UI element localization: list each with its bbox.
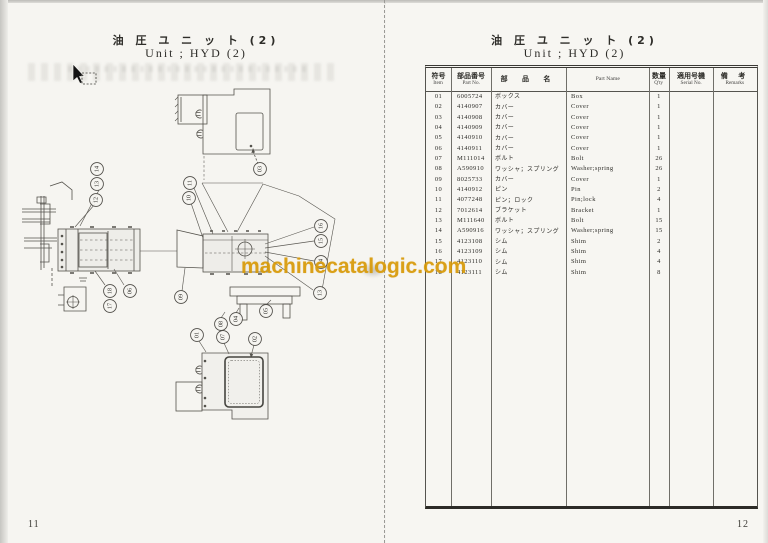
right-page-title-en: Unit ; HYD (2) bbox=[386, 46, 763, 61]
table-row: 13M111640ボルトBolt15 bbox=[426, 216, 757, 226]
table-row: 016005724ボックスBox1 bbox=[426, 92, 757, 102]
callout-03: 03 bbox=[254, 163, 267, 176]
cell-qty: 2 bbox=[649, 187, 669, 194]
right-page-number: 12 bbox=[737, 519, 749, 530]
svg-text:10: 10 bbox=[186, 195, 193, 201]
cell-item: 14 bbox=[426, 228, 451, 235]
svg-text:12: 12 bbox=[93, 197, 100, 203]
table-row: 044140909カバーCover1 bbox=[426, 123, 757, 133]
cell-qty: 15 bbox=[649, 228, 669, 235]
col-header-part-name: Part Name bbox=[566, 68, 649, 91]
callout-leader-line bbox=[265, 241, 314, 248]
cell-name_jp: カバー bbox=[491, 105, 566, 111]
left-page-number: 11 bbox=[28, 519, 40, 530]
cell-name_jp: ブラケット bbox=[491, 208, 566, 214]
table-row: 184123111シムShim8 bbox=[426, 268, 757, 278]
svg-text:15: 15 bbox=[318, 238, 325, 244]
callout-02: 02 bbox=[249, 333, 262, 346]
cell-name_en: Bolt bbox=[566, 156, 649, 163]
callout-17: 17 bbox=[104, 300, 117, 313]
table-row: 174123110シムShim4 bbox=[426, 258, 757, 268]
cell-part_no: 4123108 bbox=[451, 239, 491, 246]
cell-name_jp: カバー bbox=[491, 146, 566, 152]
callout-leader-line bbox=[95, 271, 105, 285]
cell-name_jp: ワッシャ；スプリング bbox=[491, 229, 566, 235]
cell-item: 07 bbox=[426, 156, 451, 163]
svg-text:09: 09 bbox=[178, 294, 185, 300]
callout-leader-line bbox=[224, 343, 229, 354]
table-column-line bbox=[566, 68, 567, 506]
cell-part_no: 4140908 bbox=[451, 115, 491, 122]
callout-18: 18 bbox=[104, 285, 117, 298]
callout-leader-line bbox=[182, 268, 185, 291]
cell-part_no: 6005724 bbox=[451, 94, 491, 101]
svg-text:11: 11 bbox=[187, 180, 194, 186]
callout-10: 10 bbox=[183, 192, 196, 205]
table-row: 034140908カバーCover1 bbox=[426, 113, 757, 123]
table-row: 064140911カバーCover1 bbox=[426, 144, 757, 154]
cell-item: 13 bbox=[426, 218, 451, 225]
table-row: 08A590910ワッシャ；スプリングWasher;spring26 bbox=[426, 164, 757, 174]
table-row: 054140910カバーCover1 bbox=[426, 133, 757, 143]
cell-name_jp: カバー bbox=[491, 177, 566, 183]
cell-qty: 15 bbox=[649, 218, 669, 225]
callout-08: 08 bbox=[215, 318, 228, 331]
callout-leader-line bbox=[265, 227, 314, 244]
callout-leader-line bbox=[194, 188, 213, 234]
cell-name_jp: ピン；ロック bbox=[491, 198, 566, 204]
table-column-line bbox=[669, 68, 670, 506]
cell-name_jp: シム bbox=[491, 270, 566, 276]
cell-name_en: Cover bbox=[566, 135, 649, 142]
cell-name_en: Washer;spring bbox=[566, 166, 649, 173]
col-header-remarks: 備 考 Remarks bbox=[713, 68, 757, 91]
cell-item: 10 bbox=[426, 187, 451, 194]
cell-qty: 26 bbox=[649, 156, 669, 163]
cell-qty: 1 bbox=[649, 94, 669, 101]
svg-text:17: 17 bbox=[107, 303, 114, 309]
svg-text:18: 18 bbox=[107, 288, 114, 294]
cell-item: 12 bbox=[426, 208, 451, 215]
cell-name_en: Cover bbox=[566, 125, 649, 132]
cell-name_en: Cover bbox=[566, 104, 649, 111]
scan-edge-right bbox=[763, 0, 768, 543]
table-row: 104140912ピンPin2 bbox=[426, 185, 757, 195]
cell-part_no: 4140909 bbox=[451, 125, 491, 132]
table-column-line bbox=[713, 68, 714, 506]
cell-name_jp: シム bbox=[491, 249, 566, 255]
cell-qty: 1 bbox=[649, 208, 669, 215]
cell-name_jp: シム bbox=[491, 239, 566, 245]
cell-name_jp: ピン bbox=[491, 187, 566, 193]
cell-part_no: 4140912 bbox=[451, 187, 491, 194]
cell-name_jp: ボックス bbox=[491, 94, 566, 100]
table-header-row: 符号 Item 部品番号 Part No. 部 品 名 Part Name 数量… bbox=[426, 68, 757, 91]
cell-name_en: Pin bbox=[566, 187, 649, 194]
svg-text:04: 04 bbox=[233, 316, 240, 322]
cell-item: 03 bbox=[426, 115, 451, 122]
watermark-text: machinecatalogic.com bbox=[241, 255, 466, 279]
callout-16: 16 bbox=[315, 220, 328, 233]
cell-part_no: 4140910 bbox=[451, 135, 491, 142]
cell-qty: 26 bbox=[649, 166, 669, 173]
table-column-line bbox=[491, 68, 492, 506]
svg-text:01: 01 bbox=[194, 332, 201, 338]
callout-13: 13 bbox=[91, 178, 104, 191]
selection-dashed-box bbox=[82, 73, 96, 84]
cell-item: 04 bbox=[426, 125, 451, 132]
col-header-serial: 適用号機 Serial No. bbox=[669, 68, 713, 91]
callout-05: 05 bbox=[260, 305, 273, 318]
cell-qty: 1 bbox=[649, 146, 669, 153]
table-row: 164123109シムShim4 bbox=[426, 247, 757, 257]
callout-13: 13 bbox=[314, 287, 327, 300]
cell-part_no: 4140911 bbox=[451, 146, 491, 153]
cell-part_no: 7012614 bbox=[451, 208, 491, 215]
scan-edge-left bbox=[0, 0, 8, 543]
cell-name_en: Cover bbox=[566, 115, 649, 122]
cell-name_en: Shim bbox=[566, 239, 649, 246]
callout-leader-line bbox=[191, 203, 203, 238]
callout-04: 04 bbox=[230, 313, 243, 326]
table-row: 07M111014ボルトBolt26 bbox=[426, 154, 757, 164]
parts-table: 符号 Item 部品番号 Part No. 部 品 名 Part Name 数量… bbox=[425, 65, 758, 509]
cell-qty: 4 bbox=[649, 259, 669, 266]
cell-name_en: Cover bbox=[566, 146, 649, 153]
table-column-line bbox=[649, 68, 650, 506]
svg-text:13: 13 bbox=[317, 290, 324, 296]
callout-09: 09 bbox=[175, 291, 188, 304]
cell-name_en: Bolt bbox=[566, 218, 649, 225]
svg-text:14: 14 bbox=[94, 166, 101, 172]
cell-name_en: Pin;lock bbox=[566, 197, 649, 204]
cell-part_no: A590916 bbox=[451, 228, 491, 235]
callout-14: 14 bbox=[91, 163, 104, 176]
callout-06: 06 bbox=[124, 285, 137, 298]
svg-text:06: 06 bbox=[127, 288, 134, 294]
table-row: 154123108シムShim2 bbox=[426, 237, 757, 247]
cell-name_en: Shim bbox=[566, 270, 649, 277]
cell-item: 08 bbox=[426, 166, 451, 173]
cell-name_en: Bracket bbox=[566, 208, 649, 215]
cell-name_jp: ボルト bbox=[491, 156, 566, 162]
svg-text:02: 02 bbox=[252, 336, 259, 342]
table-row: 098025733カバーCover1 bbox=[426, 175, 757, 185]
cell-name_jp: シム bbox=[491, 260, 566, 266]
svg-text:13: 13 bbox=[94, 181, 101, 187]
cell-item: 02 bbox=[426, 104, 451, 111]
col-header-item: 符号 Item bbox=[426, 68, 451, 91]
cell-qty: 2 bbox=[649, 239, 669, 246]
cell-name_jp: ワッシャ；スプリング bbox=[491, 167, 566, 173]
callout-leader-line bbox=[199, 341, 206, 352]
callout-12: 12 bbox=[90, 194, 103, 207]
cell-qty: 1 bbox=[649, 104, 669, 111]
cell-item: 05 bbox=[426, 135, 451, 142]
table-column-line bbox=[451, 68, 452, 506]
svg-text:05: 05 bbox=[263, 308, 270, 314]
cell-part_no: 4077248 bbox=[451, 197, 491, 204]
callout-leader-line bbox=[75, 204, 95, 227]
col-header-qty: 数量 Q'ty bbox=[649, 68, 669, 91]
cell-name_en: Cover bbox=[566, 177, 649, 184]
table-row: 127012614ブラケットBracket1 bbox=[426, 206, 757, 216]
cell-qty: 4 bbox=[649, 197, 669, 204]
cell-name_jp: カバー bbox=[491, 115, 566, 121]
callout-11: 11 bbox=[184, 177, 197, 190]
cell-name_en: Shim bbox=[566, 249, 649, 256]
cell-name_en: Shim bbox=[566, 259, 649, 266]
cell-qty: 1 bbox=[649, 135, 669, 142]
cell-item: 06 bbox=[426, 146, 451, 153]
table-row: 024140907カバーCover1 bbox=[426, 102, 757, 112]
col-header-part-no: 部品番号 Part No. bbox=[451, 68, 491, 91]
cell-part_no: 8025733 bbox=[451, 177, 491, 184]
cell-qty: 8 bbox=[649, 270, 669, 277]
cell-part_no: 4140907 bbox=[451, 104, 491, 111]
cell-part_no: M111014 bbox=[451, 156, 491, 163]
cell-item: 15 bbox=[426, 239, 451, 246]
cell-name_en: Box bbox=[566, 94, 649, 101]
scanned-catalog-spread: 油 圧 ユ ニ ッ ト (2) Unit ; HYD (2) bbox=[0, 0, 768, 543]
cell-item: 09 bbox=[426, 177, 451, 184]
cell-qty: 1 bbox=[649, 125, 669, 132]
table-body: 016005724ボックスBox1024140907カバーCover103414… bbox=[426, 92, 757, 278]
table-row: 14A590916ワッシャ；スプリングWasher;spring15 bbox=[426, 226, 757, 236]
cell-name_jp: ボルト bbox=[491, 218, 566, 224]
callout-leader-line bbox=[221, 312, 225, 318]
svg-text:03: 03 bbox=[257, 166, 264, 172]
table-row: 114077248ピン；ロックPin;lock4 bbox=[426, 195, 757, 205]
svg-text:07: 07 bbox=[220, 334, 227, 340]
cell-name_jp: カバー bbox=[491, 125, 566, 131]
callout-15: 15 bbox=[315, 235, 328, 248]
cell-qty: 4 bbox=[649, 249, 669, 256]
cell-qty: 1 bbox=[649, 115, 669, 122]
mouse-cursor-icon bbox=[73, 64, 84, 84]
svg-text:08: 08 bbox=[218, 321, 225, 327]
cell-qty: 1 bbox=[649, 177, 669, 184]
callout-07: 07 bbox=[217, 331, 230, 344]
cell-name_en: Washer;spring bbox=[566, 228, 649, 235]
col-header-name-jp: 部 品 名 bbox=[491, 68, 566, 91]
cell-part_no: A590910 bbox=[451, 166, 491, 173]
callout-01: 01 bbox=[191, 329, 204, 342]
cell-name_jp: カバー bbox=[491, 136, 566, 142]
cell-item: 01 bbox=[426, 94, 451, 101]
svg-text:16: 16 bbox=[318, 223, 325, 229]
cell-part_no: M111640 bbox=[451, 218, 491, 225]
cell-item: 11 bbox=[426, 197, 451, 204]
